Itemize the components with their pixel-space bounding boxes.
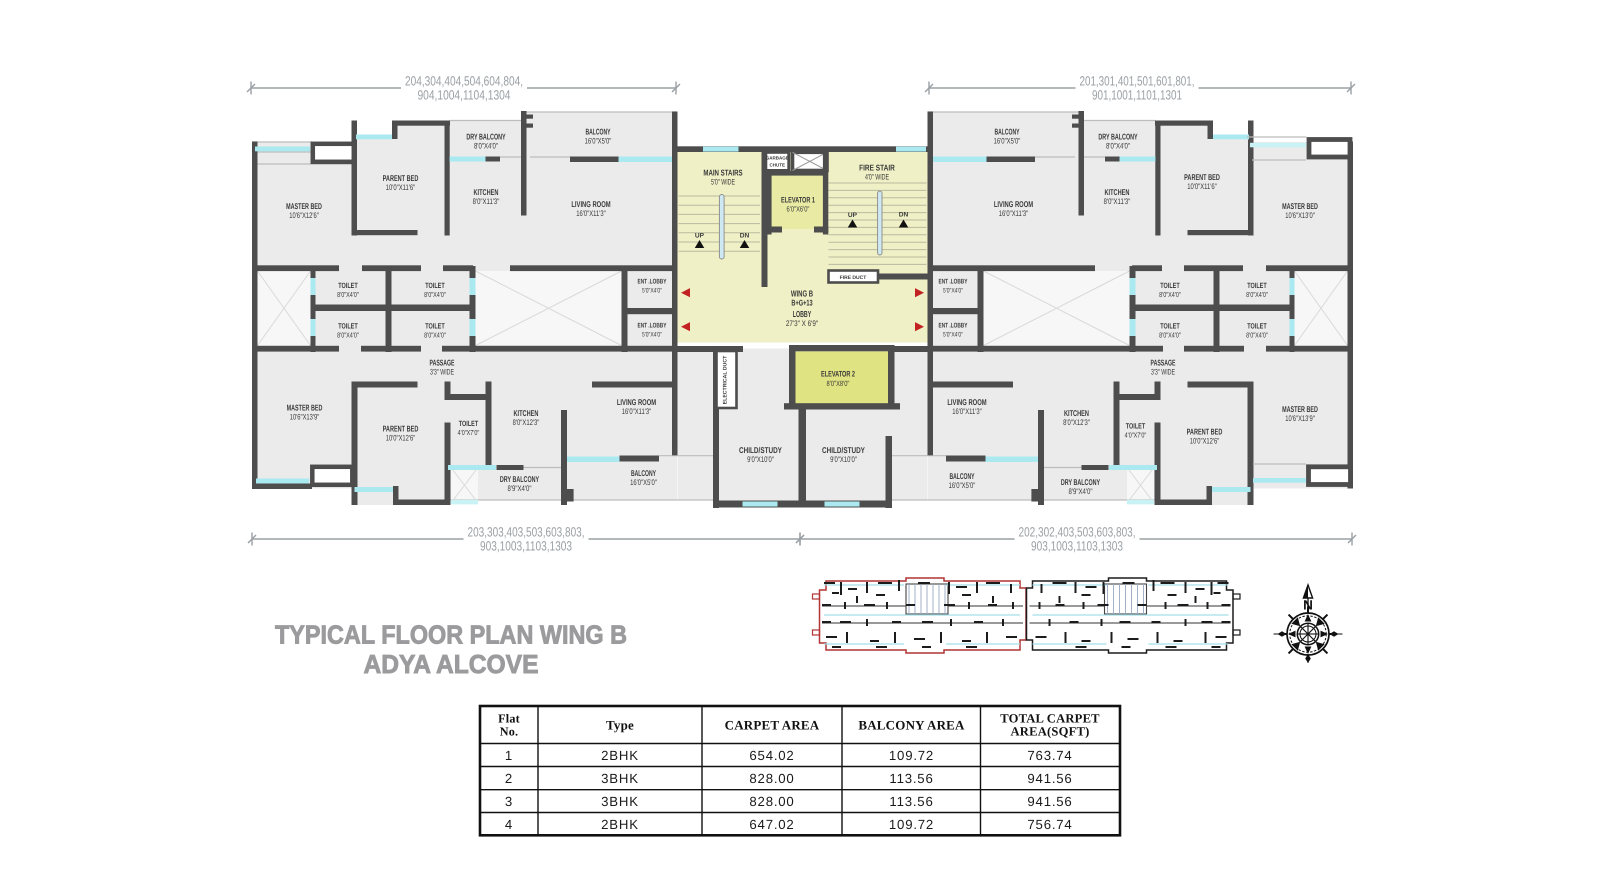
svg-text:4: 4 [505,817,513,832]
svg-text:Flat: Flat [498,712,520,726]
svg-text:828.00: 828.00 [749,771,794,786]
svg-text:TOILET: TOILET [1247,281,1267,290]
svg-text:201,301,401,501,601,801,: 201,301,401,501,601,801, [1080,74,1195,89]
svg-text:8'9"X4'0": 8'9"X4'0" [1068,487,1092,496]
svg-text:PASSAGE: PASSAGE [430,358,455,368]
svg-text:8'0"X8'0": 8'0"X8'0" [827,379,850,388]
svg-text:16'0"X5'0": 16'0"X5'0" [994,136,1021,145]
svg-text:LIVING ROOM: LIVING ROOM [947,397,986,407]
svg-text:2BHK: 2BHK [601,817,639,832]
svg-text:BALCONY: BALCONY [586,127,611,137]
svg-text:763.74: 763.74 [1027,748,1072,763]
svg-text:TOILET: TOILET [425,322,445,331]
svg-text:CHILD/STUDY: CHILD/STUDY [739,445,782,455]
svg-text:UP: UP [848,212,858,219]
svg-text:DN: DN [899,212,909,219]
svg-text:10'0"X12'6": 10'0"X12'6" [1190,436,1220,445]
svg-text:10'0"X11'6": 10'0"X11'6" [386,183,416,192]
svg-text:756.74: 756.74 [1027,817,1072,832]
svg-text:TOILET: TOILET [1160,322,1180,331]
svg-text:MASTER BED: MASTER BED [1282,404,1318,414]
svg-text:10'0"X11'6": 10'0"X11'6" [1187,182,1217,191]
svg-text:5'0"X4'0": 5'0"X4'0" [943,287,963,294]
svg-text:16'0"X5'0": 16'0"X5'0" [949,481,976,490]
svg-text:AREA(SQFT): AREA(SQFT) [1011,725,1090,739]
svg-text:8'0"X11'3": 8'0"X11'3" [473,197,500,206]
svg-text:PARENT BED: PARENT BED [383,424,419,434]
svg-text:203,303,403,503,603,803,: 203,303,403,503,603,803, [468,525,585,540]
svg-text:TOILET: TOILET [1160,281,1180,290]
svg-text:TOILET: TOILET [459,419,479,428]
svg-text:PASSAGE: PASSAGE [1151,358,1176,368]
svg-text:8'0"X4'0": 8'0"X4'0" [1246,330,1268,339]
svg-text:KITCHEN: KITCHEN [474,187,499,197]
svg-text:CHILD/STUDY: CHILD/STUDY [822,445,865,455]
svg-text:BALCONY AREA: BALCONY AREA [858,718,965,733]
svg-text:113.56: 113.56 [889,794,933,809]
svg-text:202,302,403,503,603,803,: 202,302,403,503,603,803, [1019,525,1136,540]
svg-text:TOILET: TOILET [338,281,358,290]
svg-text:941.56: 941.56 [1027,794,1072,809]
svg-text:16'0"X11'3": 16'0"X11'3" [622,407,652,416]
svg-text:8'0"X4'0": 8'0"X4'0" [337,290,359,299]
svg-text:ELEVATOR 2: ELEVATOR 2 [821,370,855,379]
svg-text:ELEVATOR 1: ELEVATOR 1 [781,196,815,205]
svg-text:16'0"X5'0": 16'0"X5'0" [585,136,612,145]
svg-text:8'0"X4'0": 8'0"X4'0" [424,290,446,299]
svg-text:4'0"X7'0": 4'0"X7'0" [458,428,480,437]
svg-text:DRY BALCONY: DRY BALCONY [1098,132,1138,142]
svg-text:10'6"X13'9": 10'6"X13'9" [290,412,320,421]
svg-text:903,1003,1103,1303: 903,1003,1103,1303 [480,539,572,554]
svg-text:FIRE STAIR: FIRE STAIR [859,163,895,173]
svg-text:10'6"X13'0": 10'6"X13'0" [1285,211,1315,220]
svg-text:9'0"X10'0": 9'0"X10'0" [747,455,774,464]
svg-text:5'0"X4'0": 5'0"X4'0" [943,331,963,338]
svg-text:DN: DN [740,233,750,240]
svg-text:LIVING ROOM: LIVING ROOM [617,397,656,407]
svg-text:TOILET: TOILET [1247,322,1267,331]
svg-text:Type: Type [606,718,634,733]
svg-text:8'0"X12'3": 8'0"X12'3" [1063,418,1090,427]
svg-text:647.02: 647.02 [749,817,794,832]
svg-text:5'0"X4'0": 5'0"X4'0" [642,287,662,294]
svg-text:DRY BALCONY: DRY BALCONY [1061,477,1101,487]
svg-text:8'0"X4'0": 8'0"X4'0" [1159,290,1181,299]
svg-text:GARBAGE: GARBAGE [766,155,789,160]
svg-text:10'0"X12'6": 10'0"X12'6" [386,433,416,442]
svg-text:ELECTRICAL DUCT: ELECTRICAL DUCT [723,355,729,404]
svg-text:TOILET: TOILET [338,322,358,331]
svg-text:UP: UP [695,233,705,240]
svg-text:TOILET: TOILET [425,281,445,290]
svg-text:3BHK: 3BHK [601,771,639,786]
svg-text:No.: No. [500,725,519,739]
svg-text:ENT .LOBBY: ENT .LOBBY [638,323,667,330]
svg-text:CHUTE: CHUTE [770,162,786,167]
svg-text:654.02: 654.02 [749,748,794,763]
svg-text:9'0"X10'0": 9'0"X10'0" [830,455,857,464]
svg-text:LIVING ROOM: LIVING ROOM [994,199,1033,209]
svg-text:10'6"X12'6": 10'6"X12'6" [289,211,319,220]
svg-text:PARENT BED: PARENT BED [1187,427,1223,437]
svg-text:904,1004,1104,1304: 904,1004,1104,1304 [418,88,511,103]
svg-text:8'9"X4'0": 8'9"X4'0" [507,484,531,493]
svg-text:2BHK: 2BHK [601,748,639,763]
svg-text:BALCONY: BALCONY [950,471,975,481]
svg-text:16'0"X11'3": 16'0"X11'3" [999,209,1029,218]
svg-text:8'0"X4'0": 8'0"X4'0" [424,330,446,339]
svg-text:113.56: 113.56 [889,771,933,786]
svg-text:TYPICAL FLOOR PLAN WING B: TYPICAL FLOOR PLAN WING B [275,620,627,650]
svg-text:1: 1 [505,748,513,763]
svg-text:LIVING ROOM: LIVING ROOM [571,199,610,209]
svg-text:KITCHEN: KITCHEN [1064,408,1089,418]
svg-text:CARPET AREA: CARPET AREA [725,718,820,733]
svg-text:3'3" WIDE: 3'3" WIDE [430,367,454,376]
svg-text:2: 2 [505,771,513,786]
svg-text:N: N [1303,598,1313,613]
svg-text:8'0"X4'0": 8'0"X4'0" [1246,290,1268,299]
svg-text:5'0" WIDE: 5'0" WIDE [711,178,735,187]
svg-text:PARENT BED: PARENT BED [1184,172,1220,182]
svg-text:6'0"X6'0": 6'0"X6'0" [787,205,810,214]
svg-text:DRY BALCONY: DRY BALCONY [466,132,506,142]
svg-text:4'0" WIDE: 4'0" WIDE [865,173,889,182]
svg-text:8'0"X4'0": 8'0"X4'0" [1159,330,1181,339]
svg-text:KITCHEN: KITCHEN [1105,187,1130,197]
svg-text:MASTER BED: MASTER BED [287,403,323,413]
svg-text:27'3" X 6'9": 27'3" X 6'9" [786,319,818,328]
svg-text:PARENT BED: PARENT BED [383,173,419,183]
svg-text:8'0"X11'3": 8'0"X11'3" [1104,197,1131,206]
svg-text:8'0"X4'0": 8'0"X4'0" [337,330,359,339]
svg-text:3BHK: 3BHK [601,794,639,809]
svg-text:ENT .LOBBY: ENT .LOBBY [939,323,968,330]
svg-text:MASTER BED: MASTER BED [286,201,322,211]
svg-text:LOBBY: LOBBY [793,309,812,319]
svg-text:204,304,404,504,604,804,: 204,304,404,504,604,804, [405,74,523,89]
svg-text:3: 3 [505,794,513,809]
svg-text:BALCONY: BALCONY [631,468,656,478]
svg-text:4'0"X7'0": 4'0"X7'0" [1125,430,1147,439]
svg-text:5'0"X4'0": 5'0"X4'0" [642,331,662,338]
svg-text:8'0"X4'0": 8'0"X4'0" [1106,141,1130,150]
svg-text:KITCHEN: KITCHEN [514,408,539,418]
svg-text:16'0"X11'3": 16'0"X11'3" [576,209,606,218]
svg-text:B+G+13: B+G+13 [791,298,812,308]
svg-text:109.72: 109.72 [889,817,934,832]
svg-text:109.72: 109.72 [889,748,934,763]
svg-text:8'0"X12'3": 8'0"X12'3" [513,418,540,427]
svg-text:8'0"X4'0": 8'0"X4'0" [474,141,498,150]
svg-text:ADYA ALCOVE: ADYA ALCOVE [364,649,539,679]
svg-text:TOILET: TOILET [1126,422,1146,431]
svg-text:3'3" WIDE: 3'3" WIDE [1151,367,1175,376]
svg-text:DRY BALCONY: DRY BALCONY [500,474,540,484]
svg-text:TOTAL CARPET: TOTAL CARPET [1000,712,1100,726]
svg-text:BALCONY: BALCONY [995,127,1020,137]
svg-text:901,1001,1101,1301: 901,1001,1101,1301 [1092,88,1182,103]
svg-text:16'0"X11'3": 16'0"X11'3" [952,407,982,416]
svg-text:16'0"X5'0": 16'0"X5'0" [630,478,657,487]
svg-text:ENT .LOBBY: ENT .LOBBY [939,279,968,286]
svg-text:FIRE DUCT: FIRE DUCT [840,275,867,281]
svg-text:MASTER BED: MASTER BED [1282,201,1318,211]
svg-text:10'6"X13'9": 10'6"X13'9" [1285,414,1315,423]
svg-text:941.56: 941.56 [1027,771,1072,786]
svg-text:903,1003,1103,1303: 903,1003,1103,1303 [1031,539,1123,554]
svg-text:828.00: 828.00 [749,794,794,809]
svg-text:MAIN STAIRS: MAIN STAIRS [703,168,743,178]
svg-text:ENT .LOBBY: ENT .LOBBY [638,279,667,286]
